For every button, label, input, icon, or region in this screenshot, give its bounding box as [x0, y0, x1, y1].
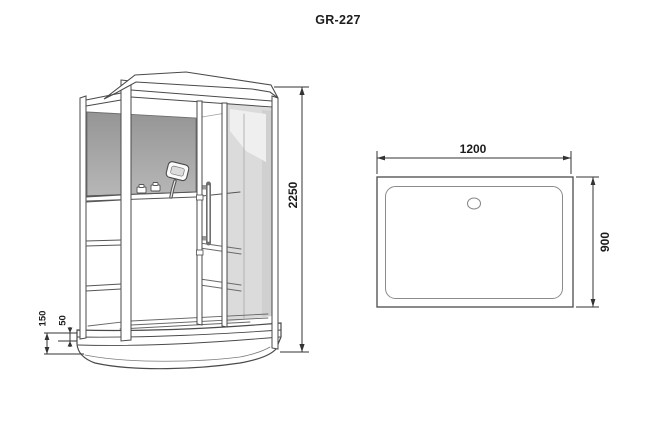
tray-top-view-drawing: [377, 177, 573, 307]
drain-icon: [468, 198, 481, 209]
cabin-side-shelf-rails: [86, 195, 121, 291]
cabin-door-rails: [197, 101, 228, 327]
tray-outline: [377, 177, 573, 307]
dim-label-depth: 900: [598, 222, 612, 262]
cabin-side-glass: [227, 103, 272, 322]
dim-label-width: 1200: [433, 141, 513, 156]
drawing-line-art: [0, 0, 650, 432]
dim-label-tray-height: 150: [37, 304, 50, 334]
cabin-perspective-drawing: [77, 72, 281, 369]
cabin-roof: [86, 72, 278, 107]
shower-tray-base: [77, 323, 281, 369]
dim-height-2250: [274, 87, 309, 352]
dim-label-height: 2250: [286, 173, 300, 217]
dim-label-tray-step: 50: [57, 309, 70, 333]
dim-depth-900: [576, 177, 599, 307]
page-title: GR-227: [288, 12, 388, 28]
shower-cabin-spec-sheet: GR-227 1200 900 2250 150 50: [0, 0, 650, 432]
door-handle: [203, 184, 209, 243]
